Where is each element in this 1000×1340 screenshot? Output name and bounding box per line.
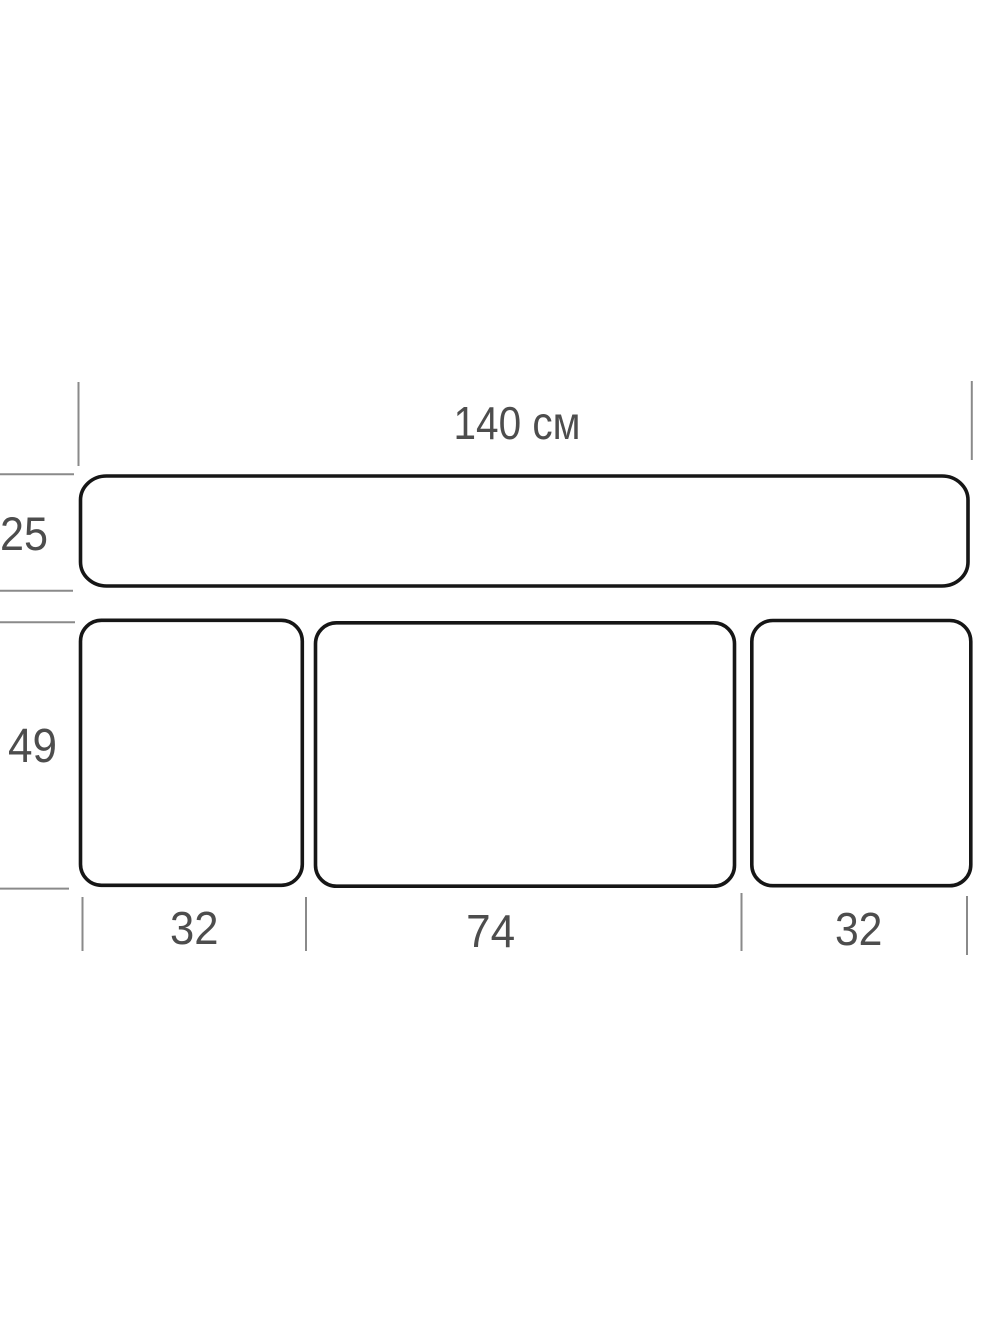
svg-text:140 см: 140 см — [454, 397, 581, 449]
svg-text:25: 25 — [0, 507, 48, 560]
svg-text:74: 74 — [466, 905, 515, 957]
svg-text:49: 49 — [8, 720, 57, 773]
svg-text:32: 32 — [170, 902, 219, 954]
svg-text:32: 32 — [835, 903, 883, 955]
